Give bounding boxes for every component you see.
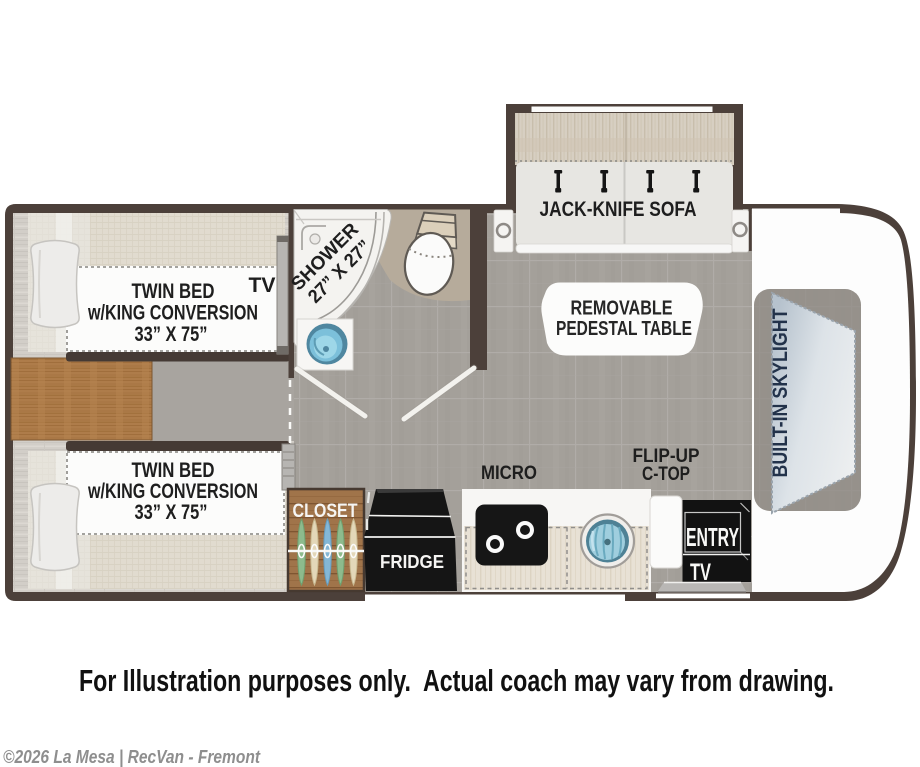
svg-text:©2026 La Mesa | RecVan - Fremo: ©2026 La Mesa | RecVan - Fremont	[3, 747, 261, 767]
svg-text:33” X 75”: 33” X 75”	[135, 501, 208, 524]
svg-text:PEDESTAL TABLE: PEDESTAL TABLE	[556, 318, 692, 340]
svg-text:BUILT-IN SKYLIGHT: BUILT-IN SKYLIGHT	[769, 308, 792, 477]
svg-text:REMOVABLE: REMOVABLE	[571, 298, 673, 320]
svg-text:For Illustration purposes only: For Illustration purposes only. Actual c…	[79, 663, 834, 698]
svg-text:TWIN BED: TWIN BED	[132, 459, 215, 482]
svg-text:MICRO: MICRO	[481, 463, 537, 484]
svg-text:ENTRY: ENTRY	[686, 522, 739, 552]
svg-text:TV: TV	[249, 274, 276, 297]
svg-text:FRIDGE: FRIDGE	[380, 552, 444, 572]
svg-text:CLOSET: CLOSET	[293, 501, 358, 522]
svg-text:TWIN BED: TWIN BED	[132, 280, 215, 303]
svg-text:JACK-KNIFE SOFA: JACK-KNIFE SOFA	[540, 198, 697, 221]
svg-text:w/KING CONVERSION: w/KING CONVERSION	[87, 480, 258, 503]
svg-text:33” X 75”: 33” X 75”	[135, 323, 208, 346]
svg-text:C-TOP: C-TOP	[642, 464, 690, 485]
svg-text:w/KING CONVERSION: w/KING CONVERSION	[87, 302, 258, 325]
